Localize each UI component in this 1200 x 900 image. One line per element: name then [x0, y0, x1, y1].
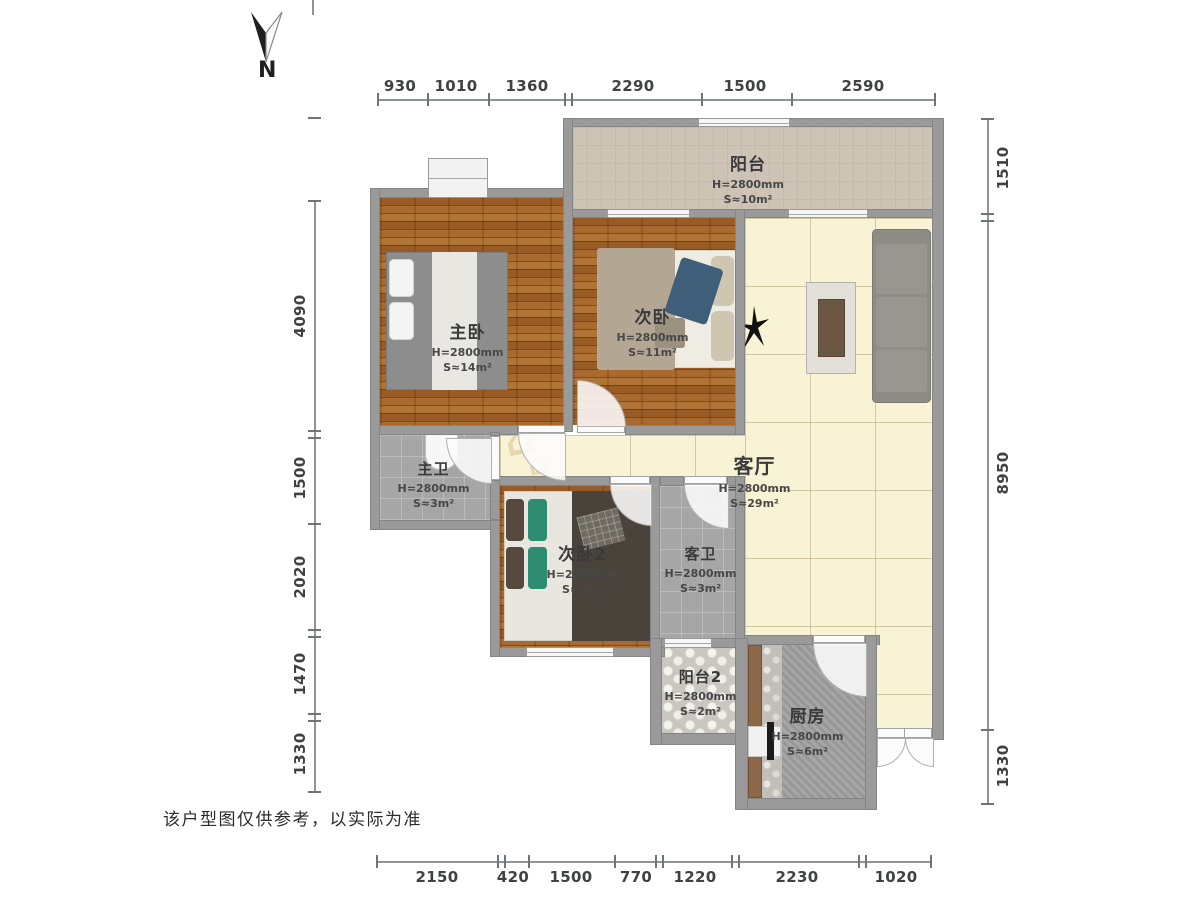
dimension-tick [655, 855, 657, 868]
dim-label: 2590 [842, 77, 885, 95]
pillow [389, 302, 414, 340]
dim-label: 2020 [291, 556, 309, 599]
wall [660, 476, 684, 486]
wall [370, 188, 380, 530]
dim-label: 930 [384, 77, 416, 95]
bay-window [428, 158, 488, 198]
dimension-tick [308, 791, 321, 793]
dimension-tick [738, 855, 740, 868]
dimension-tick [981, 220, 994, 222]
door-leaf [813, 635, 865, 643]
dim-label: 8950 [994, 452, 1012, 495]
dimension-tick [377, 93, 379, 106]
dim-line-left [314, 200, 316, 792]
dimension-tick [308, 523, 321, 525]
dimension-tick [930, 855, 932, 868]
dimension-tick [308, 636, 321, 638]
door-leaf [610, 476, 650, 484]
dimension-tick [981, 118, 994, 120]
door-leaf [684, 476, 727, 484]
wall [735, 209, 745, 435]
pillow [528, 547, 547, 589]
wall [563, 118, 573, 432]
dimension-tick [858, 855, 860, 868]
pillow [506, 547, 524, 589]
dim-label: 420 [497, 868, 529, 886]
dimension-tick [791, 93, 793, 106]
dim-label: 1510 [994, 147, 1012, 190]
dimension-tick [865, 855, 867, 868]
dim-label: 1500 [291, 457, 309, 500]
dim-label: 1330 [994, 745, 1012, 788]
window [664, 638, 712, 648]
dim-label: 1360 [506, 77, 549, 95]
north-arrow-icon [238, 8, 296, 64]
dim-label: 4090 [291, 295, 309, 338]
dimension-tick [376, 855, 378, 868]
dimension-tick [662, 855, 664, 868]
dimension-tick [981, 729, 994, 731]
wall [490, 480, 500, 520]
dim-label: 1020 [875, 868, 918, 886]
wall [370, 520, 500, 530]
wall [932, 118, 944, 740]
dim-label: 1010 [435, 77, 478, 95]
dimension-tick [488, 93, 490, 106]
dimension-tick [528, 855, 530, 868]
balcony2-floor [662, 648, 735, 733]
dimension-tick [504, 855, 506, 868]
dimension-tick [308, 117, 321, 119]
dimension-tick [701, 93, 703, 106]
door-leaf [518, 425, 565, 433]
floorplan-canvas: N 930 1010 1360 2290 1500 2590 2150 420 [0, 0, 1200, 900]
stove [767, 722, 774, 760]
pillow [389, 259, 414, 297]
dimension-tick [614, 855, 616, 868]
window [788, 209, 868, 218]
clothes [655, 318, 685, 348]
pillow [528, 499, 547, 541]
dimension-tick [308, 430, 321, 432]
pillow [506, 499, 524, 541]
dim-label: 1330 [291, 733, 309, 776]
dim-label: 1220 [674, 868, 717, 886]
dim-label: 770 [620, 868, 652, 886]
dimension-tick [934, 93, 936, 106]
second-bed-blanket [597, 248, 675, 370]
dimension-tick [497, 855, 499, 868]
wall [625, 425, 745, 435]
north-label: N [258, 58, 276, 83]
dimension-tick [731, 855, 733, 868]
entry-door-arc [905, 738, 934, 767]
dim-line-top [377, 99, 935, 101]
entry-door-arc [877, 738, 906, 767]
tick [312, 0, 314, 15]
sofa-cushion [876, 297, 927, 347]
dim-label: 1500 [550, 868, 593, 886]
window [526, 647, 614, 657]
dimension-tick [564, 93, 566, 106]
kitchen-counter [748, 645, 762, 798]
dim-line-bottom [376, 861, 931, 863]
wall [735, 638, 748, 810]
dim-label: 2150 [416, 868, 459, 886]
sofa-cushion [876, 244, 927, 294]
kitchen-appliance [748, 726, 781, 757]
dim-label: 2290 [612, 77, 655, 95]
dimension-tick [308, 200, 321, 202]
wall [490, 520, 500, 657]
window [607, 209, 690, 218]
master-bed-sheet [432, 252, 477, 390]
dimension-tick [308, 720, 321, 722]
wall [650, 733, 748, 745]
dimension-tick [308, 437, 321, 439]
dim-label: 1500 [724, 77, 767, 95]
wall [735, 476, 745, 648]
wall [650, 638, 662, 745]
sofa-cushion [876, 350, 927, 392]
dimension-tick [981, 803, 994, 805]
dim-label: 1470 [291, 653, 309, 696]
window [698, 118, 790, 127]
dimension-tick [308, 713, 321, 715]
entry-door-leaf [877, 728, 905, 738]
dimension-tick [571, 93, 573, 106]
dim-label: 2230 [776, 868, 819, 886]
pillow [711, 311, 734, 361]
dimension-tick [308, 629, 321, 631]
dimension-tick [427, 93, 429, 106]
entry-door-leaf [904, 728, 932, 738]
balcony-floor [573, 127, 932, 209]
disclaimer-note: 该户型图仅供参考，以实际为准 [163, 805, 422, 830]
dimension-tick [981, 213, 994, 215]
wall [735, 798, 877, 810]
coffee-table-top [818, 299, 845, 357]
